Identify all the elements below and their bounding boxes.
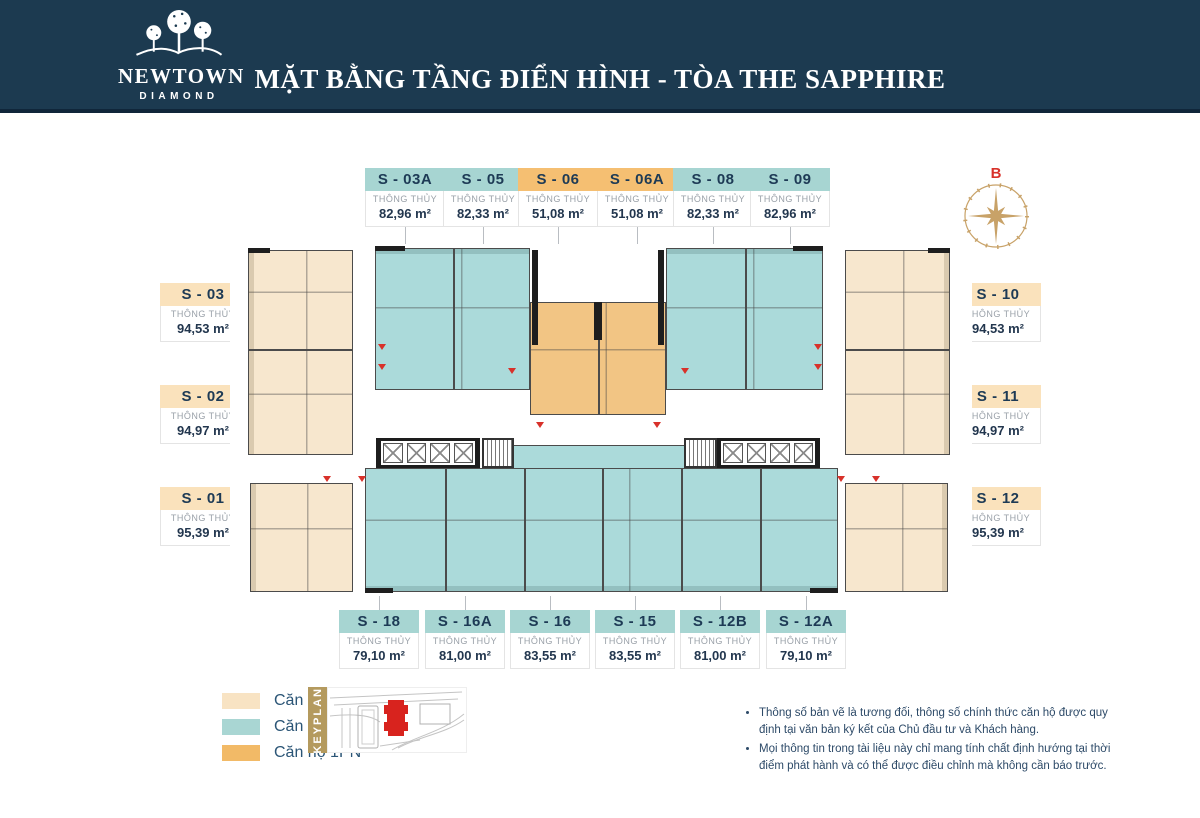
unit-id: S - 15 (595, 610, 675, 633)
leader-line (405, 227, 406, 244)
wall-segment (365, 588, 393, 593)
compass-rose: B (956, 160, 1036, 257)
floor-plan (230, 244, 972, 596)
unit-id: S - 16A (425, 610, 505, 633)
unit-divider (453, 249, 455, 389)
elevator-cell (747, 443, 767, 463)
wall-segment (248, 248, 270, 253)
elevator-cell (794, 443, 814, 463)
plan-unit-s10 (845, 250, 950, 350)
unit-id: S - 06 (518, 168, 598, 191)
elevator-cell (454, 443, 474, 463)
plan-unit-s03 (248, 250, 353, 350)
plan-unit-s02 (248, 350, 353, 455)
door-marker-icon (536, 422, 544, 428)
disclaimer-notes: Thông số bản vẽ là tương đối, thông số c… (745, 705, 1117, 777)
unit-divider (602, 469, 604, 591)
page-title: MẶT BẰNG TẦNG ĐIỂN HÌNH - TÒA THE SAPPHI… (0, 64, 1200, 95)
unit-subtitle: THÔNG THỦY (340, 635, 418, 648)
legend-swatch-2pn (222, 719, 260, 735)
trees-icon (131, 6, 227, 58)
keyplan-map (327, 687, 467, 753)
unit-subtitle: THÔNG THỦY (681, 635, 759, 648)
unit-subtitle: THÔNG THỦY (426, 635, 504, 648)
unit-subtitle: THÔNG THỦY (511, 635, 589, 648)
unit-label-s16: S - 16 THÔNG THỦY 83,55 m² (510, 610, 590, 669)
elevator-cell (430, 443, 450, 463)
door-marker-icon (378, 364, 386, 370)
header-band: NEWTOWN DIAMOND MẶT BẰNG TẦNG ĐIỂN HÌNH … (0, 0, 1200, 113)
unit-subtitle: THÔNG THỦY (366, 193, 444, 206)
leader-line (790, 227, 791, 244)
unit-subtitle: THÔNG THỦY (674, 193, 752, 206)
unit-label-s03a: S - 03A THÔNG THỦY 82,96 m² (365, 168, 445, 227)
unit-id: S - 12A (766, 610, 846, 633)
unit-area: 82,96 m² (366, 206, 444, 222)
unit-area: 81,00 m² (426, 648, 504, 664)
plan-unit-s03a-s05 (375, 248, 530, 390)
unit-label-s18: S - 18 THÔNG THỦY 79,10 m² (339, 610, 419, 669)
wall-segment (658, 250, 664, 345)
unit-label-s12b: S - 12B THÔNG THỦY 81,00 m² (680, 610, 760, 669)
door-marker-icon (653, 422, 661, 428)
compass-icon: B (956, 160, 1036, 252)
unit-label-s12a: S - 12A THÔNG THỦY 79,10 m² (766, 610, 846, 669)
plan-unit-s11 (845, 350, 950, 455)
door-marker-icon (814, 344, 822, 350)
unit-subtitle: THÔNG THỦY (596, 635, 674, 648)
leader-line (713, 227, 714, 244)
plan-unit-s01 (250, 483, 353, 592)
elevator-bank-right (716, 438, 820, 468)
unit-area: 51,08 m² (598, 206, 676, 222)
unit-label-s05: S - 05 THÔNG THỦY 82,33 m² (443, 168, 523, 227)
unit-id: S - 05 (443, 168, 523, 191)
door-marker-icon (323, 476, 331, 482)
elevator-cell (383, 443, 403, 463)
stair-core-right (684, 438, 717, 468)
plan-units-bottom-row (365, 468, 838, 592)
unit-label-s06a: S - 06A THÔNG THỦY 51,08 m² (597, 168, 677, 227)
unit-subtitle: THÔNG THỦY (519, 193, 597, 206)
brochure-page: NEWTOWN DIAMOND MẶT BẰNG TẦNG ĐIỂN HÌNH … (0, 0, 1200, 818)
wall-segment (810, 588, 838, 593)
unit-area: 81,00 m² (681, 648, 759, 664)
door-marker-icon (358, 476, 366, 482)
elevator-cell (770, 443, 790, 463)
unit-area: 79,10 m² (767, 648, 845, 664)
door-marker-icon (378, 344, 386, 350)
compass-north-label: B (991, 165, 1002, 182)
stair-core-left (482, 438, 514, 468)
unit-area: 82,96 m² (751, 206, 829, 222)
unit-label-s15: S - 15 THÔNG THỦY 83,55 m² (595, 610, 675, 669)
unit-divider (745, 249, 747, 389)
door-marker-icon (814, 364, 822, 370)
unit-id: S - 16 (510, 610, 590, 633)
unit-id: S - 03A (365, 168, 445, 191)
unit-subtitle: THÔNG THỦY (751, 193, 829, 206)
unit-divider (445, 469, 447, 591)
keyplan-highlight-building (384, 700, 408, 736)
unit-subtitle: THÔNG THỦY (767, 635, 845, 648)
unit-area: 83,55 m² (596, 648, 674, 664)
keyplan-label: KEYPLAN (312, 687, 324, 754)
legend-swatch-1pn (222, 745, 260, 761)
unit-label-s08: S - 08 THÔNG THỦY 82,33 m² (673, 168, 753, 227)
plan-unit-s12 (845, 483, 948, 592)
elevator-bank-left (376, 438, 480, 468)
note-item: Mọi thông tin trong tài liệu này chỉ man… (759, 741, 1117, 775)
unit-area: 82,33 m² (674, 206, 752, 222)
keyplan-sketch-icon (328, 688, 466, 752)
note-item: Thông số bản vẽ là tương đối, thông số c… (759, 705, 1117, 739)
leader-line (483, 227, 484, 244)
legend-swatch-3pn (222, 693, 260, 709)
wall-segment (793, 246, 823, 251)
unit-label-s09: S - 09 THÔNG THỦY 82,96 m² (750, 168, 830, 227)
door-marker-icon (872, 476, 880, 482)
wall-segment (594, 302, 602, 340)
unit-divider (681, 469, 683, 591)
unit-id: S - 12B (680, 610, 760, 633)
unit-divider (524, 469, 526, 591)
unit-subtitle: THÔNG THỦY (444, 193, 522, 206)
unit-id: S - 08 (673, 168, 753, 191)
unit-area: 79,10 m² (340, 648, 418, 664)
unit-area: 82,33 m² (444, 206, 522, 222)
wall-segment (532, 250, 538, 345)
elevator-cell (723, 443, 743, 463)
wall-segment (928, 248, 950, 253)
plan-unit-s08-s09 (666, 248, 823, 390)
keyplan-bar: KEYPLAN (308, 687, 327, 753)
unit-id: S - 06A (597, 168, 677, 191)
unit-area: 83,55 m² (511, 648, 589, 664)
door-marker-icon (837, 476, 845, 482)
unit-subtitle: THÔNG THỦY (598, 193, 676, 206)
unit-id: S - 18 (339, 610, 419, 633)
door-marker-icon (508, 368, 516, 374)
unit-label-s06: S - 06 THÔNG THỦY 51,08 m² (518, 168, 598, 227)
unit-label-s16a: S - 16A THÔNG THỦY 81,00 m² (425, 610, 505, 669)
elevator-cell (407, 443, 427, 463)
door-marker-icon (681, 368, 689, 374)
wall-segment (375, 246, 405, 251)
unit-area: 51,08 m² (519, 206, 597, 222)
unit-divider (760, 469, 762, 591)
unit-id: S - 09 (750, 168, 830, 191)
